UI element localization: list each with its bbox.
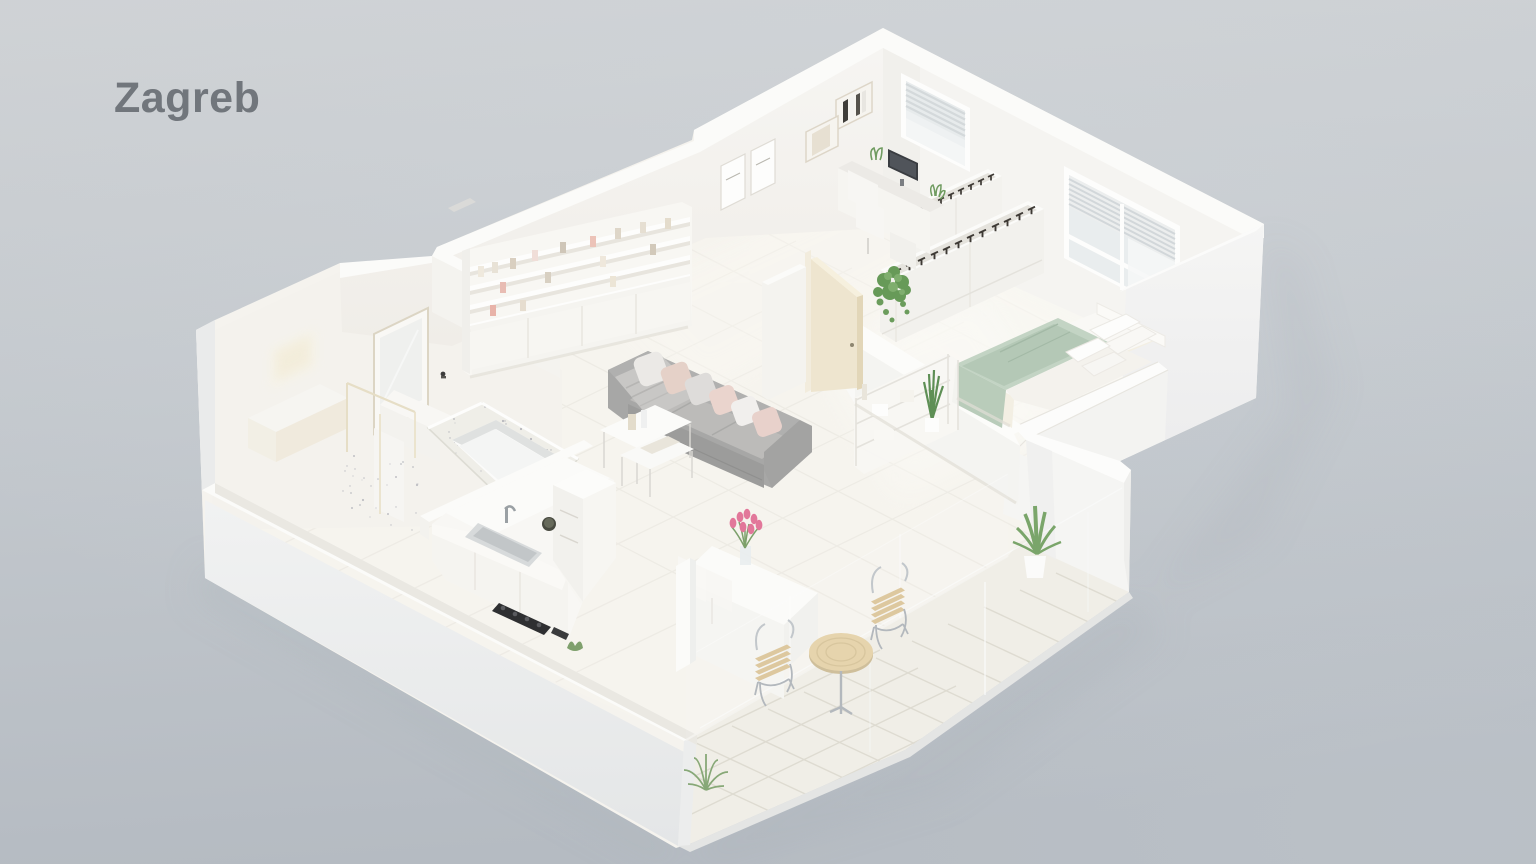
svg-text:Zagreb: Zagreb (114, 74, 260, 122)
